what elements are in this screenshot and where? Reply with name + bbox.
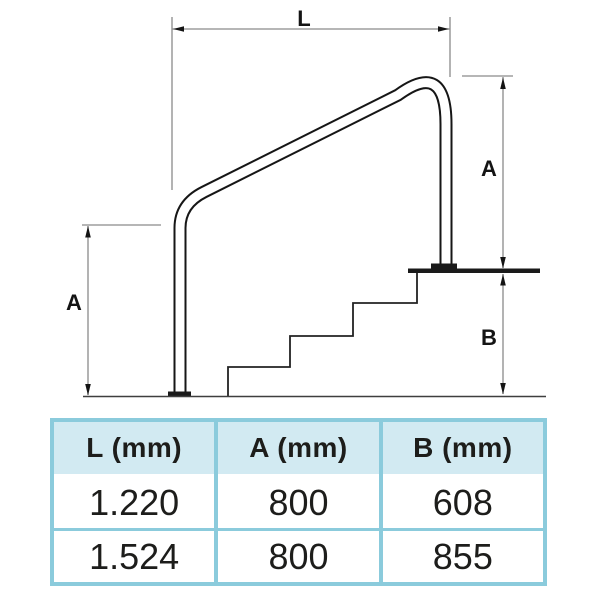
value-b-1: 608 [383,477,543,528]
header-cell-l: L (mm) [54,422,214,474]
dimensions-table: L (mm) A (mm) B (mm) 1.220 800 608 [50,418,547,586]
dim-label-depth: B [481,325,497,350]
steps-outline [228,271,417,397]
arrow-a-right-bottom [500,257,506,269]
handrail-spec-sheet: L A A B L (mm) A (mm) B (mm) 1.220 800 6… [0,0,600,600]
dim-label-height-right: A [481,156,497,181]
header-cell-b: B (mm) [383,422,543,474]
arrow-l-right [438,26,449,32]
table-row: 1.524 800 855 [54,531,543,582]
dim-label-height-left: A [66,290,82,315]
arrow-b-bottom [500,383,506,395]
table-row: 1.220 800 608 [54,477,543,528]
handrail-outline [180,83,446,397]
arrow-a-left-top [85,226,91,238]
value-a-2: 800 [218,531,378,582]
flange-deck [431,264,457,269]
table-header-row: L (mm) A (mm) B (mm) [54,422,543,474]
handrail-diagram: L A A B [0,0,600,412]
value-b-2: 855 [383,531,543,582]
handrail-core [180,83,446,397]
value-a-1: 800 [218,477,378,528]
header-cell-a: A (mm) [218,422,378,474]
arrow-a-left-bottom [85,384,91,396]
arrow-b-top [500,274,506,286]
deck-plate [408,269,540,274]
arrow-l-left [173,26,184,32]
dim-label-length: L [297,6,310,31]
value-l-1: 1.220 [54,477,214,528]
arrow-a-right-top [500,78,506,90]
value-l-2: 1.524 [54,531,214,582]
